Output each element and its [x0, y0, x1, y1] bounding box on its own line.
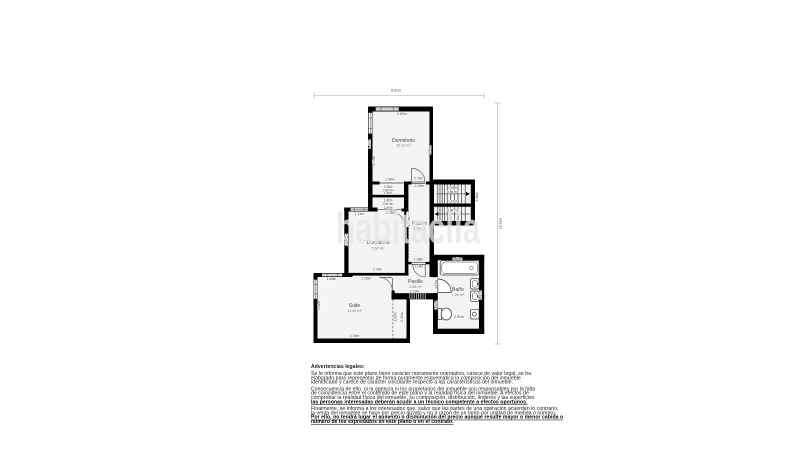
svg-text:1.08m: 1.08m	[414, 257, 424, 261]
svg-text:0.73m: 0.73m	[414, 177, 423, 181]
svg-text:2.91m: 2.91m	[454, 315, 464, 319]
svg-text:2.13m: 2.13m	[410, 289, 420, 293]
svg-text:12.31m: 12.31m	[499, 218, 503, 230]
svg-text:0.94 m²: 0.94 m²	[447, 190, 458, 194]
svg-text:1.10m: 1.10m	[414, 264, 423, 268]
svg-text:8.91m: 8.91m	[391, 89, 401, 93]
svg-text:0.45m: 0.45m	[400, 312, 404, 321]
svg-text:10.12 m²: 10.12 m²	[396, 144, 412, 148]
svg-text:11.40 m²: 11.40 m²	[347, 309, 362, 313]
svg-text:2.00m: 2.00m	[453, 257, 463, 261]
svg-text:1.40m: 1.40m	[385, 178, 395, 182]
svg-text:Pasillo: Pasillo	[408, 279, 423, 285]
svg-text:2.79m: 2.79m	[373, 268, 383, 272]
svg-text:2.31m: 2.31m	[317, 301, 321, 310]
svg-text:2.02m: 2.02m	[394, 312, 398, 321]
svg-text:1.40m: 1.40m	[384, 191, 393, 195]
svg-text:2.16m: 2.16m	[475, 192, 479, 201]
svg-text:identificado y carece de carác: identificado y carece de carácter vincul…	[311, 380, 513, 386]
svg-text:número de los expresados en es: número de los expresados en este plano o…	[311, 419, 454, 425]
svg-text:1.05m: 1.05m	[362, 276, 372, 280]
svg-text:Advertencias legales:: Advertencias legales:	[311, 364, 365, 370]
svg-text:7.26 m²: 7.26 m²	[452, 293, 466, 297]
svg-text:1.17m: 1.17m	[434, 280, 438, 289]
svg-text:1.10m: 1.10m	[448, 199, 457, 203]
svg-text:1.63m: 1.63m	[327, 277, 337, 281]
svg-text:1.10m: 1.10m	[414, 184, 424, 188]
svg-text:2.80m: 2.80m	[397, 112, 407, 116]
svg-text:1.09m: 1.09m	[367, 139, 371, 148]
svg-text:0.97m: 0.97m	[434, 300, 438, 309]
svg-text:las personas interesadas deber: las personas interesadas deberán acudir …	[311, 399, 528, 405]
svg-text:habitaclia: habitaclia	[336, 204, 480, 253]
svg-text:2.92m: 2.92m	[479, 290, 483, 299]
svg-text:3.73m: 3.73m	[428, 145, 432, 154]
svg-text:3.73m: 3.73m	[372, 156, 376, 165]
svg-text:4.76m: 4.76m	[350, 334, 360, 338]
